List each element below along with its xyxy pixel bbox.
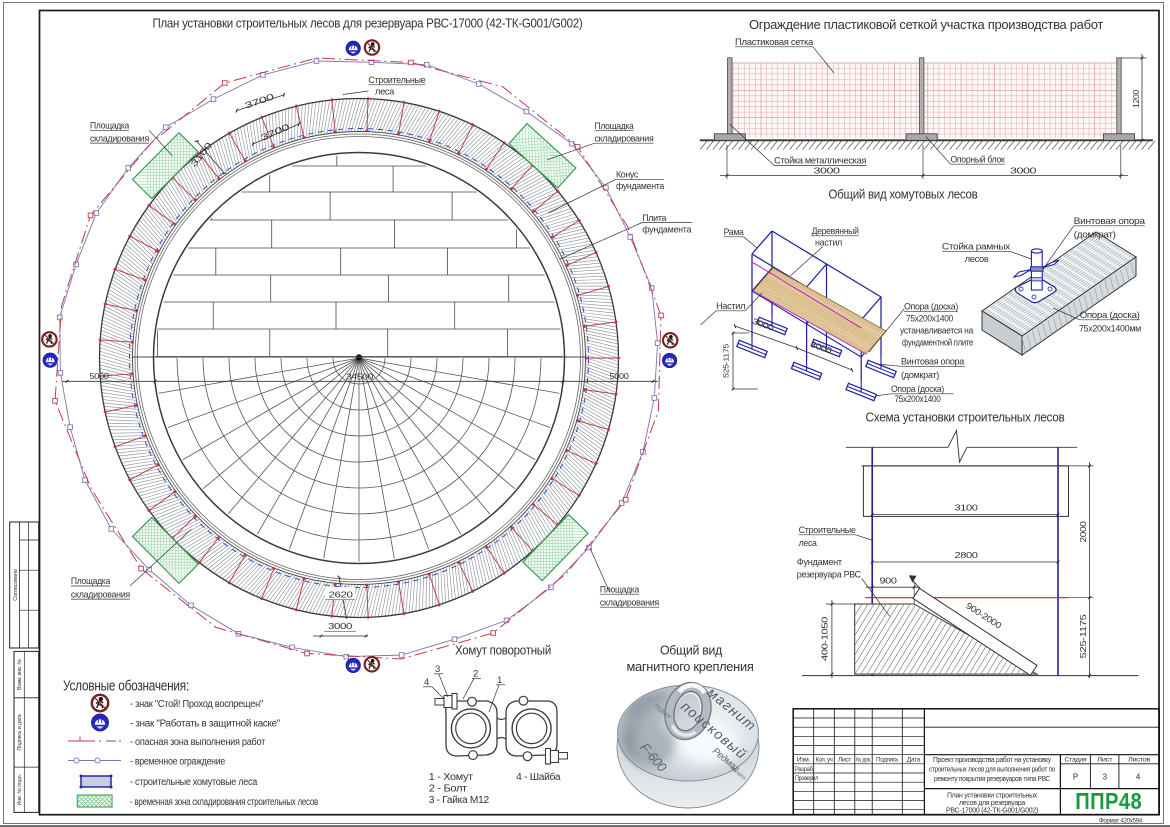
svg-text:Взам. инв. №: Взам. инв. № bbox=[17, 659, 23, 690]
svg-text:900: 900 bbox=[880, 576, 898, 586]
svg-text:Опора (доска): Опора (доска) bbox=[1080, 310, 1140, 320]
svg-text:2800: 2800 bbox=[955, 550, 979, 560]
svg-text:Стадия: Стадия bbox=[1064, 756, 1087, 763]
svg-text:складирования: складирования bbox=[600, 597, 659, 607]
svg-text:- опасная зона выполнения рабо: - опасная зона выполнения работ bbox=[130, 736, 266, 748]
svg-text:Хомут поворотный: Хомут поворотный bbox=[455, 643, 551, 658]
svg-text:75х200х1400: 75х200х1400 bbox=[906, 314, 953, 324]
svg-text:525-1175: 525-1175 bbox=[722, 344, 731, 378]
svg-text:- знак "Стой! Проход воспрещен: - знак "Стой! Проход воспрещен" bbox=[130, 699, 264, 710]
svg-text:- временное ограждение: - временное ограждение bbox=[130, 757, 226, 768]
svg-text:- временная зона складирования: - временная зона складирования строитель… bbox=[130, 797, 318, 808]
svg-text:1: 1 bbox=[497, 675, 502, 686]
svg-text:75х200х1400мм: 75х200х1400мм bbox=[1079, 324, 1141, 334]
svg-text:4 - Шайба: 4 - Шайба bbox=[516, 771, 561, 783]
svg-text:Проверил: Проверил bbox=[795, 776, 819, 782]
svg-text:Стойка рамных: Стойка рамных bbox=[942, 242, 1011, 252]
svg-text:Общий вид хомутовых лесов: Общий вид хомутовых лесов bbox=[829, 187, 978, 202]
svg-text:Площадка: Площадка bbox=[595, 121, 635, 131]
svg-text:3 - Гайка М12: 3 - Гайка М12 bbox=[429, 795, 490, 806]
svg-text:Подпись: Подпись bbox=[876, 758, 898, 764]
svg-text:3000: 3000 bbox=[814, 165, 841, 175]
svg-text:магнитного крепления: магнитного крепления bbox=[627, 659, 754, 674]
svg-text:(домкрат): (домкрат) bbox=[1074, 230, 1116, 240]
svg-text:План установки строительных ле: План установки строительных лесов для ре… bbox=[153, 16, 583, 31]
svg-text:ремонту покрытия резервуаров т: ремонту покрытия резервуаров типа РВС bbox=[934, 774, 1051, 783]
svg-text:3000: 3000 bbox=[328, 621, 353, 631]
svg-text:Изм.: Изм. bbox=[797, 758, 811, 764]
svg-text:2000: 2000 bbox=[1078, 521, 1088, 543]
svg-text:Согласовано: Согласовано bbox=[13, 569, 19, 601]
svg-text:фундамента: фундамента bbox=[642, 224, 692, 234]
svg-text:Стойка металлическая: Стойка металлическая bbox=[774, 156, 866, 166]
svg-text:фундаментной плите: фундаментной плите bbox=[902, 338, 973, 348]
svg-text:- знак "Работать в защитной ка: - знак "Работать в защитной каске" bbox=[130, 718, 281, 730]
svg-text:Условные обозначения:: Условные обозначения: bbox=[63, 679, 189, 695]
svg-text:Опора (доска): Опора (доска) bbox=[891, 384, 944, 394]
svg-text:Инв. № подл.: Инв. № подл. bbox=[17, 774, 23, 805]
svg-text:складирования: складирования bbox=[90, 133, 149, 143]
svg-text:2620: 2620 bbox=[329, 590, 354, 600]
svg-text:4: 4 bbox=[424, 677, 429, 688]
svg-text:РВС-17000 (42-ТК-G001/G002): РВС-17000 (42-ТК-G001/G002) bbox=[946, 806, 1038, 815]
svg-text:75х200х1400: 75х200х1400 bbox=[895, 394, 941, 404]
svg-text:Р: Р bbox=[1073, 773, 1078, 782]
svg-text:Настил: Настил bbox=[716, 301, 745, 311]
svg-text:складирования: складирования bbox=[595, 133, 654, 143]
svg-text:- строительные хомутовые леса: - строительные хомутовые леса bbox=[130, 777, 258, 788]
svg-text:Проект производства работ на у: Проект производства работ на установку bbox=[933, 755, 1052, 764]
svg-text:Опорный блок: Опорный блок bbox=[951, 154, 1006, 164]
svg-text:2 - Болт: 2 - Болт bbox=[429, 784, 468, 795]
svg-text:5000: 5000 bbox=[90, 372, 110, 381]
svg-text:Строительные: Строительные bbox=[799, 525, 856, 535]
svg-text:Подпись и дата: Подпись и дата bbox=[17, 714, 23, 750]
svg-text:Лист: Лист bbox=[1097, 756, 1112, 763]
svg-text:Кол. уч: Кол. уч bbox=[816, 758, 833, 764]
svg-text:настил: настил bbox=[815, 238, 842, 248]
svg-text:1 - Хомут: 1 - Хомут bbox=[429, 772, 474, 783]
svg-text:3000: 3000 bbox=[1010, 165, 1037, 175]
svg-text:Строительные: Строительные bbox=[368, 75, 425, 85]
svg-text:Пластиковая сетка: Пластиковая сетка bbox=[735, 37, 814, 47]
svg-text:устанавливается на: устанавливается на bbox=[900, 326, 973, 336]
svg-text:Листов: Листов bbox=[1128, 756, 1151, 763]
svg-text:Фундамент: Фундамент bbox=[797, 557, 843, 567]
svg-text:Деревянный: Деревянный bbox=[812, 226, 859, 236]
svg-text:Конус: Конус bbox=[616, 170, 639, 180]
svg-text:1200: 1200 bbox=[1132, 89, 1141, 108]
svg-text:3100: 3100 bbox=[955, 503, 979, 513]
svg-text:Общий вид: Общий вид bbox=[660, 643, 723, 658]
svg-text:Площадка: Площадка bbox=[90, 121, 130, 131]
svg-text:3: 3 bbox=[435, 664, 440, 675]
svg-text:ППР48: ППР48 bbox=[1075, 788, 1142, 814]
svg-text:Схема установки строительных л: Схема установки строительных лесов bbox=[866, 410, 1065, 425]
svg-text:№ док.: № док. bbox=[856, 757, 872, 764]
svg-text:525-1175: 525-1175 bbox=[1079, 613, 1088, 658]
svg-text:(домкрат): (домкрат) bbox=[901, 370, 939, 380]
svg-text:34500: 34500 bbox=[346, 373, 374, 382]
svg-text:фундамента: фундамента bbox=[616, 181, 665, 191]
svg-text:Винтовая опора: Винтовая опора bbox=[1074, 216, 1146, 226]
svg-text:складирования: складирования bbox=[71, 589, 130, 599]
svg-text:Площадка: Площадка bbox=[71, 576, 111, 586]
svg-text:Лист: Лист bbox=[838, 758, 852, 764]
svg-text:400-1050: 400-1050 bbox=[821, 616, 830, 661]
svg-text:Рама: Рама bbox=[724, 227, 745, 237]
svg-text:Опора (доска): Опора (доска) bbox=[904, 302, 958, 312]
svg-text:Разраб.: Разраб. bbox=[795, 767, 815, 773]
svg-text:Площадка: Площадка bbox=[600, 584, 640, 594]
svg-text:Формат 420х594: Формат 420х594 bbox=[1099, 818, 1143, 825]
svg-text:Винтовая опора: Винтовая опора bbox=[901, 357, 964, 367]
svg-text:Дата: Дата bbox=[907, 758, 921, 764]
svg-text:леса: леса bbox=[375, 87, 395, 97]
svg-text:Ограждение пластиковой сеткой: Ограждение пластиковой сеткой участка пр… bbox=[749, 17, 1103, 32]
svg-text:леса: леса bbox=[799, 538, 818, 548]
svg-text:2: 2 bbox=[473, 669, 478, 680]
svg-text:строительных лесов для выполне: строительных лесов для выполнения работ … bbox=[929, 764, 1055, 773]
svg-text:5000: 5000 bbox=[610, 372, 630, 381]
svg-text:лесов: лесов bbox=[965, 254, 989, 264]
svg-text:резервуара РВС: резервуара РВС bbox=[797, 570, 862, 580]
svg-text:Плита: Плита bbox=[642, 213, 667, 223]
